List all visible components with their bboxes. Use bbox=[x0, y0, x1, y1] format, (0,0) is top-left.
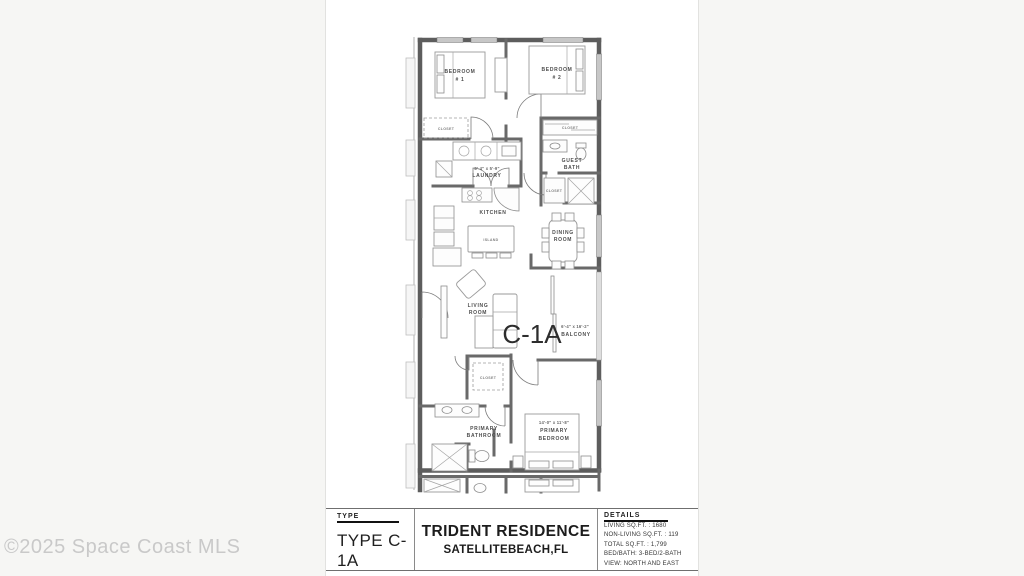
toilet-tank-icon bbox=[469, 450, 475, 462]
stool-icon bbox=[500, 253, 511, 258]
guest-bath-label: GUEST bbox=[562, 158, 583, 164]
chair-icon bbox=[577, 242, 584, 252]
primary-bath-label: BATHROOM bbox=[467, 433, 502, 439]
dining-label: ROOM bbox=[554, 237, 572, 243]
chair-icon bbox=[552, 213, 561, 221]
pillow-icon bbox=[437, 75, 444, 93]
residence-name: TRIDENT RESIDENCE bbox=[422, 523, 591, 541]
door-arc-icon bbox=[524, 173, 546, 195]
pillow-icon bbox=[576, 49, 583, 69]
nightstand-icon bbox=[581, 456, 591, 468]
laundry-sink-icon bbox=[502, 146, 516, 156]
guest-bath-label: BATH bbox=[564, 165, 580, 171]
type-value: TYPE C-1A bbox=[337, 531, 414, 571]
title-block-details-cell: DETAILS LIVING SQ.FT. : 1680 NON-LIVING … bbox=[597, 509, 698, 570]
primary-bedroom-label: BEDROOM bbox=[538, 436, 569, 442]
detail-total-sqft: TOTAL SQ.FT. : 1,799 bbox=[604, 541, 698, 550]
laundry-dimension: 8'-4" x 5'-9" bbox=[474, 166, 499, 171]
chaise-icon bbox=[475, 316, 493, 348]
balcony-rail-icon bbox=[597, 272, 602, 360]
corridor-fragments bbox=[406, 37, 415, 490]
corner-cabinet-icon bbox=[494, 188, 519, 211]
details-header: DETAILS bbox=[604, 512, 698, 519]
door-arc-icon bbox=[471, 117, 493, 139]
mls-photo-frame: BEDROOM # 1 BEDROOM # 2 CLOSET CLOSET CL… bbox=[0, 0, 1024, 576]
sink-icon bbox=[462, 407, 472, 414]
living-label: LIVING bbox=[468, 303, 489, 309]
title-block-type-cell: TYPE TYPE C-1A bbox=[326, 509, 414, 570]
balcony-dimension: 6'-4" x 16'-2" bbox=[561, 324, 589, 329]
bedroom2-label: BEDROOM bbox=[541, 67, 572, 73]
sink-icon bbox=[442, 407, 452, 414]
unit-code-label: C-1A bbox=[502, 319, 562, 349]
pillow-icon bbox=[553, 480, 573, 486]
window-icon bbox=[543, 38, 583, 43]
floorplan-sheet: BEDROOM # 1 BEDROOM # 2 CLOSET CLOSET CL… bbox=[325, 0, 699, 576]
dining-label: DINING bbox=[552, 230, 574, 236]
tv-console-icon bbox=[441, 286, 447, 338]
pantry-icon bbox=[433, 248, 461, 266]
living-label: ROOM bbox=[469, 310, 487, 316]
pillow-icon bbox=[529, 480, 549, 486]
double-vanity-icon bbox=[435, 404, 479, 417]
bedroom2-furniture bbox=[529, 46, 597, 135]
toilet-tank-icon bbox=[576, 143, 586, 148]
kitchen-fixtures bbox=[433, 188, 519, 266]
bedroom1-furniture bbox=[424, 52, 507, 138]
chair-icon bbox=[565, 261, 574, 269]
pillow-icon bbox=[576, 71, 583, 91]
detail-living-sqft: LIVING SQ.FT. : 1680 bbox=[604, 522, 698, 531]
bedroom1-label: BEDROOM bbox=[444, 69, 475, 75]
laundry-fixtures bbox=[436, 142, 521, 177]
detail-bed-bath: BED/BATH: 3-BED/2-BATH bbox=[604, 550, 698, 559]
detail-view: VIEW: NORTH AND EAST bbox=[604, 560, 698, 569]
balcony-label: BALCONY bbox=[561, 332, 591, 338]
chair-icon bbox=[542, 228, 549, 238]
pillow-icon bbox=[437, 55, 444, 73]
floor-plan-drawing: BEDROOM # 1 BEDROOM # 2 CLOSET CLOSET CL… bbox=[326, 0, 700, 576]
closet-label: CLOSET bbox=[438, 127, 455, 131]
sink-icon bbox=[550, 143, 560, 149]
kitchen-label: KITCHEN bbox=[479, 210, 506, 216]
nightstand-icon bbox=[513, 456, 523, 468]
bedroom2-number: # 2 bbox=[552, 75, 561, 81]
primary-bath-label: PRIMARY bbox=[470, 426, 498, 432]
type-header: TYPE bbox=[337, 513, 414, 520]
toilet-icon bbox=[474, 484, 486, 493]
closet-label: CLOSET bbox=[546, 189, 563, 193]
stool-icon bbox=[472, 253, 483, 258]
cabinet-icon bbox=[434, 232, 454, 246]
chair-icon bbox=[552, 261, 561, 269]
primary-bedroom-label: PRIMARY bbox=[540, 428, 568, 434]
bedroom1-number: # 1 bbox=[455, 77, 464, 83]
toilet-icon bbox=[475, 451, 489, 462]
watermark: ©2025 Space Coast MLS bbox=[4, 536, 240, 559]
title-block: TYPE TYPE C-1A TRIDENT RESIDENCE SATELLI… bbox=[326, 508, 698, 571]
armchair-icon bbox=[455, 269, 486, 300]
chair-icon bbox=[542, 242, 549, 252]
closet-label: CLOSET bbox=[562, 126, 579, 130]
window-icon bbox=[471, 38, 497, 43]
pillow-icon bbox=[529, 461, 549, 468]
window-icon bbox=[597, 380, 602, 426]
window-icon bbox=[597, 54, 602, 100]
door-arc-icon bbox=[485, 406, 505, 426]
type-header-rule bbox=[337, 521, 399, 523]
door-arc-icon bbox=[517, 94, 541, 118]
closet-label: CLOSET bbox=[480, 376, 497, 380]
lower-unit-fragment bbox=[424, 479, 579, 493]
pillow-icon bbox=[553, 461, 573, 468]
window-icon bbox=[597, 215, 602, 257]
dresser-icon bbox=[495, 58, 507, 92]
door-arc-icon bbox=[513, 360, 538, 385]
residence-location: SATELLITEBEACH,FL bbox=[444, 544, 569, 556]
sliding-door-icon bbox=[551, 276, 554, 314]
island-label: ISLAND bbox=[483, 238, 498, 242]
chair-icon bbox=[577, 228, 584, 238]
title-block-name-cell: TRIDENT RESIDENCE SATELLITEBEACH,FL bbox=[414, 509, 597, 570]
window-icon bbox=[437, 38, 463, 43]
primary-bedroom-dimension: 14'-0" x 11'-8" bbox=[539, 420, 569, 425]
stool-icon bbox=[486, 253, 497, 258]
chair-icon bbox=[565, 213, 574, 221]
stove-icon bbox=[462, 188, 492, 202]
laundry-label: LAUNDRY bbox=[472, 173, 501, 179]
detail-nonliving-sqft: NON-LIVING SQ.FT. : 119 bbox=[604, 531, 698, 540]
